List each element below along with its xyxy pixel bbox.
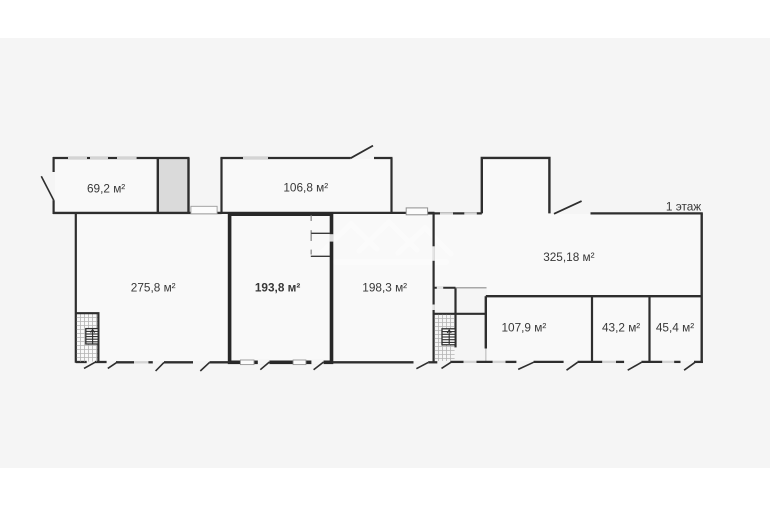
svg-text:45,4 м²: 45,4 м² bbox=[656, 321, 694, 335]
svg-text:275,8 м²: 275,8 м² bbox=[131, 281, 176, 295]
svg-text:43,2 м²: 43,2 м² bbox=[602, 321, 640, 335]
svg-text:325,18 м²: 325,18 м² bbox=[543, 250, 594, 264]
svg-text:69,2 м²: 69,2 м² bbox=[87, 181, 125, 195]
svg-text:193,8 м²: 193,8 м² bbox=[255, 281, 301, 295]
svg-text:106,8 м²: 106,8 м² bbox=[283, 181, 328, 195]
svg-text:107,9 м²: 107,9 м² bbox=[501, 321, 546, 335]
svg-text:198,3 м²: 198,3 м² bbox=[362, 281, 407, 295]
svg-text:1 этаж: 1 этаж bbox=[666, 200, 701, 214]
